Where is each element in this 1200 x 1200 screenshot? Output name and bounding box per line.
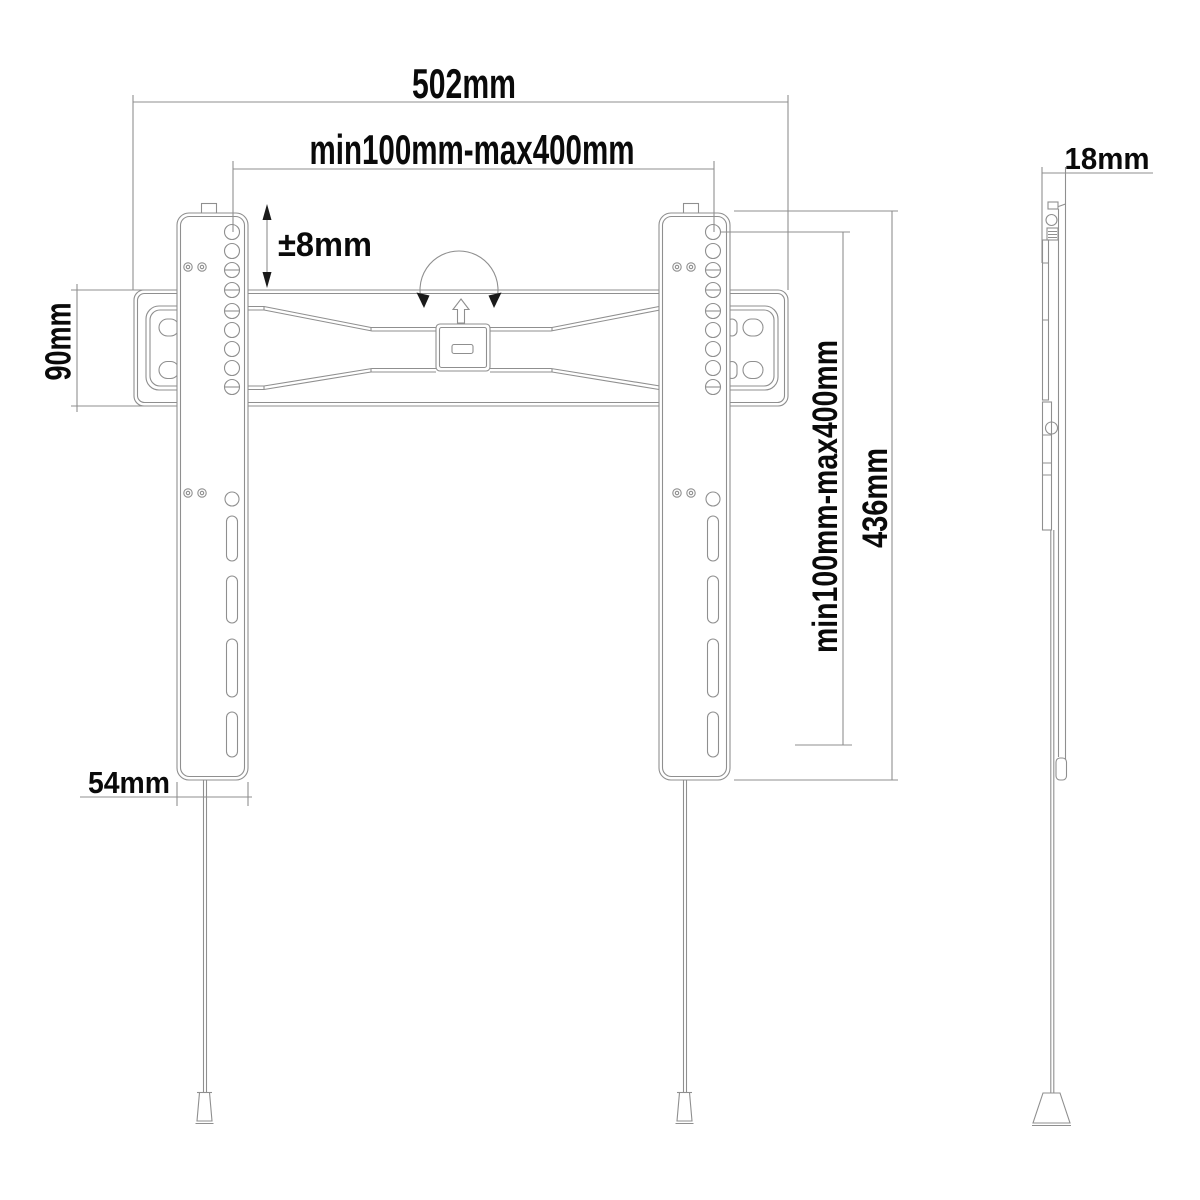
side-view [1032, 202, 1071, 1126]
label-bracket-height: 436mm [856, 448, 895, 548]
label-profile-depth: 18mm [1065, 141, 1150, 176]
side-top-hook [1046, 202, 1058, 240]
release-cords [196, 780, 694, 1124]
dim-vertical-adjust-arrow [263, 204, 272, 288]
rail-top-tab [202, 204, 217, 214]
cord-tip [197, 1093, 212, 1122]
side-wall-plate-profile [1043, 240, 1049, 400]
wall-mount-drawing: 502mm min100mm-max400mm ±8mm 90mm min100… [0, 0, 1200, 1200]
label-vertical-adjustment: ±8mm [278, 226, 372, 264]
right-release-cord [676, 780, 694, 1124]
side-mid-hook [1043, 402, 1058, 530]
label-rail-width: 54mm [88, 765, 170, 800]
rail-top-tab [684, 204, 699, 214]
label-vesa-width: min100mm-max400mm [310, 126, 635, 173]
rail-outline [177, 213, 248, 780]
technical-drawing-page: 502mm min100mm-max400mm ±8mm 90mm min100… [0, 0, 1200, 1200]
label-overall-width: 502mm [412, 60, 516, 107]
center-lock-block [436, 324, 490, 371]
right-rail [659, 204, 730, 781]
label-vesa-height: min100mm-max400mm [806, 340, 845, 653]
left-release-cord [196, 780, 214, 1124]
label-plate-height: 90mm [38, 303, 79, 381]
left-rail [177, 204, 248, 781]
cord-tip [677, 1093, 692, 1122]
side-rail-bottom-cap [1056, 758, 1067, 780]
cord-tip [1033, 1093, 1070, 1123]
